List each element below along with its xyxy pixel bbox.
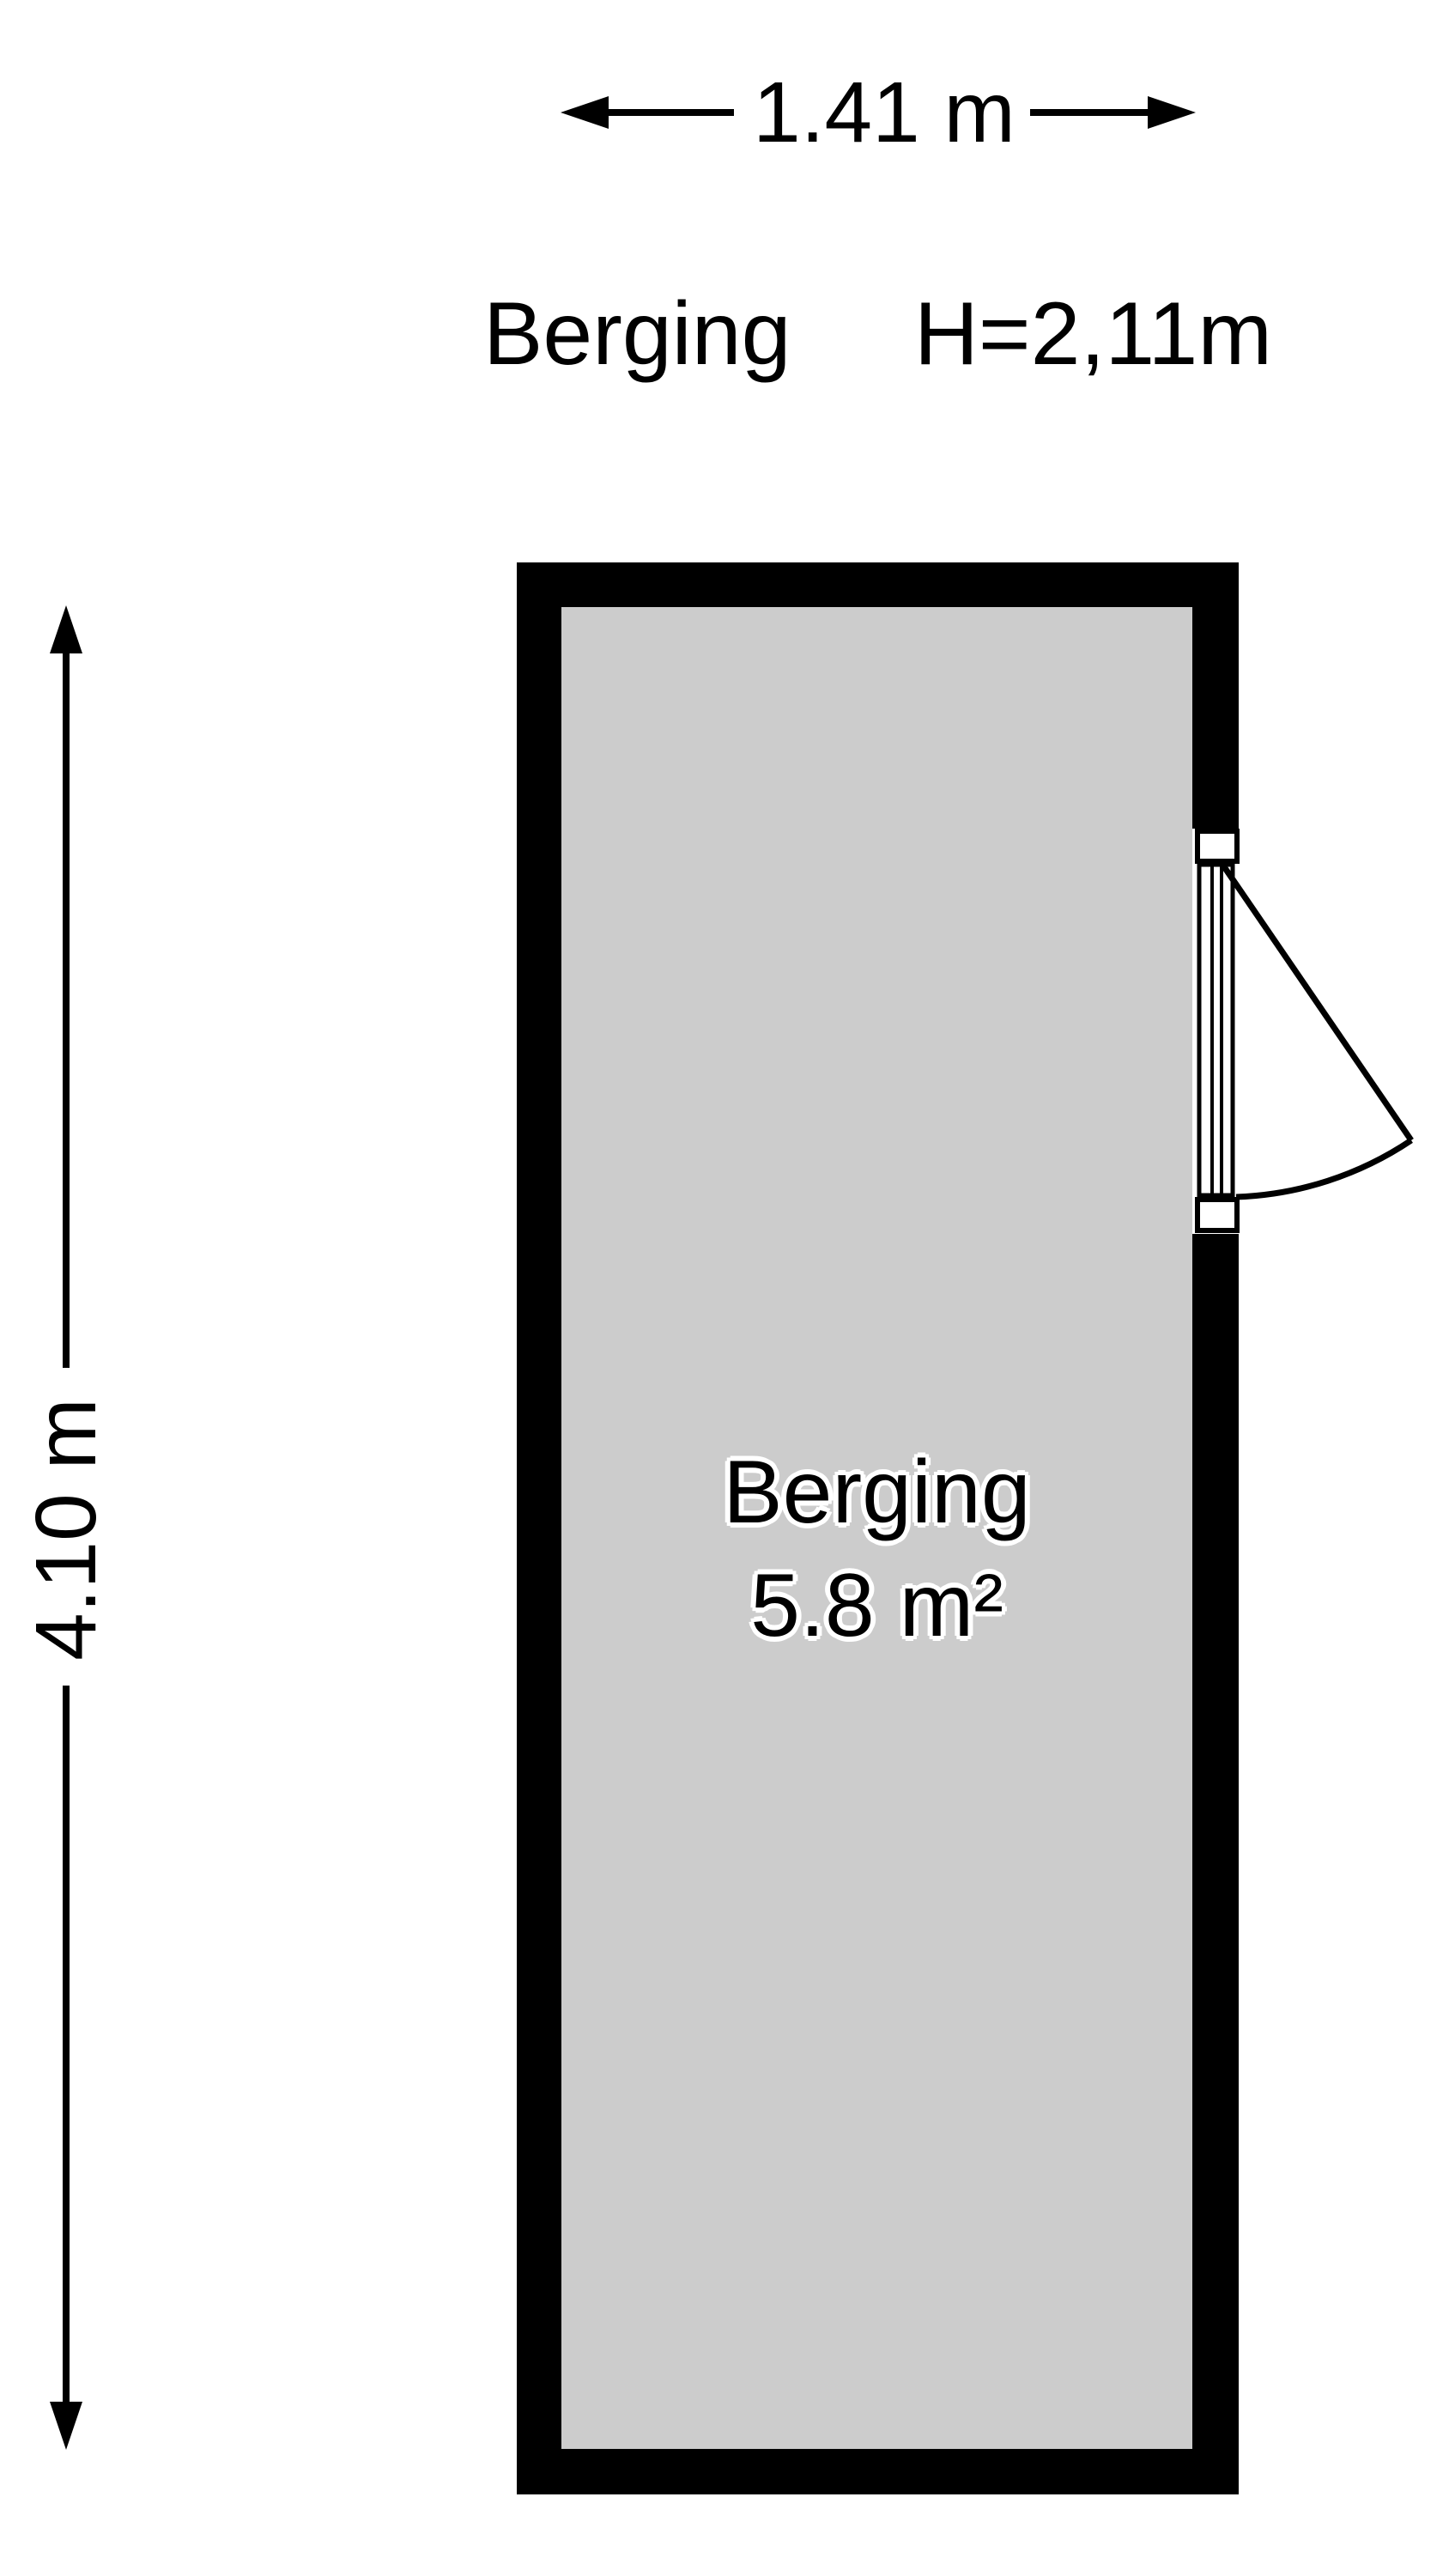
door-leaf-closed bbox=[1199, 865, 1233, 1195]
floorplan-canvas: 1.41 m Berging H=2,11m 4.10 m Berging 5.… bbox=[0, 0, 1449, 2576]
door-jamb-bottom bbox=[1197, 1200, 1237, 1230]
room-area: 5.8 m² bbox=[561, 1549, 1192, 1662]
floorplan-drawing bbox=[0, 0, 1449, 2576]
height-dimension-arrow-down-icon bbox=[50, 2402, 82, 2450]
room-label: Berging 5.8 m² bbox=[561, 1436, 1192, 1662]
door-swing-arc bbox=[1236, 1140, 1411, 1197]
door-open-leaf-line bbox=[1223, 866, 1411, 1140]
header-ceiling-height: H=2,11m bbox=[914, 289, 1272, 379]
door-jamb-top bbox=[1197, 831, 1237, 861]
height-dimension-arrow-up-icon bbox=[50, 605, 82, 653]
height-dimension-label: 4.10 m bbox=[23, 1398, 109, 1661]
plan-header: Berging H=2,11m bbox=[483, 289, 1272, 379]
header-room-name: Berging bbox=[483, 289, 791, 379]
width-dimension-label: 1.41 m bbox=[712, 62, 1056, 163]
width-dimension-arrow-right-icon bbox=[1148, 96, 1196, 129]
room-name: Berging bbox=[561, 1436, 1192, 1549]
width-dimension-arrow-left-icon bbox=[561, 96, 609, 129]
